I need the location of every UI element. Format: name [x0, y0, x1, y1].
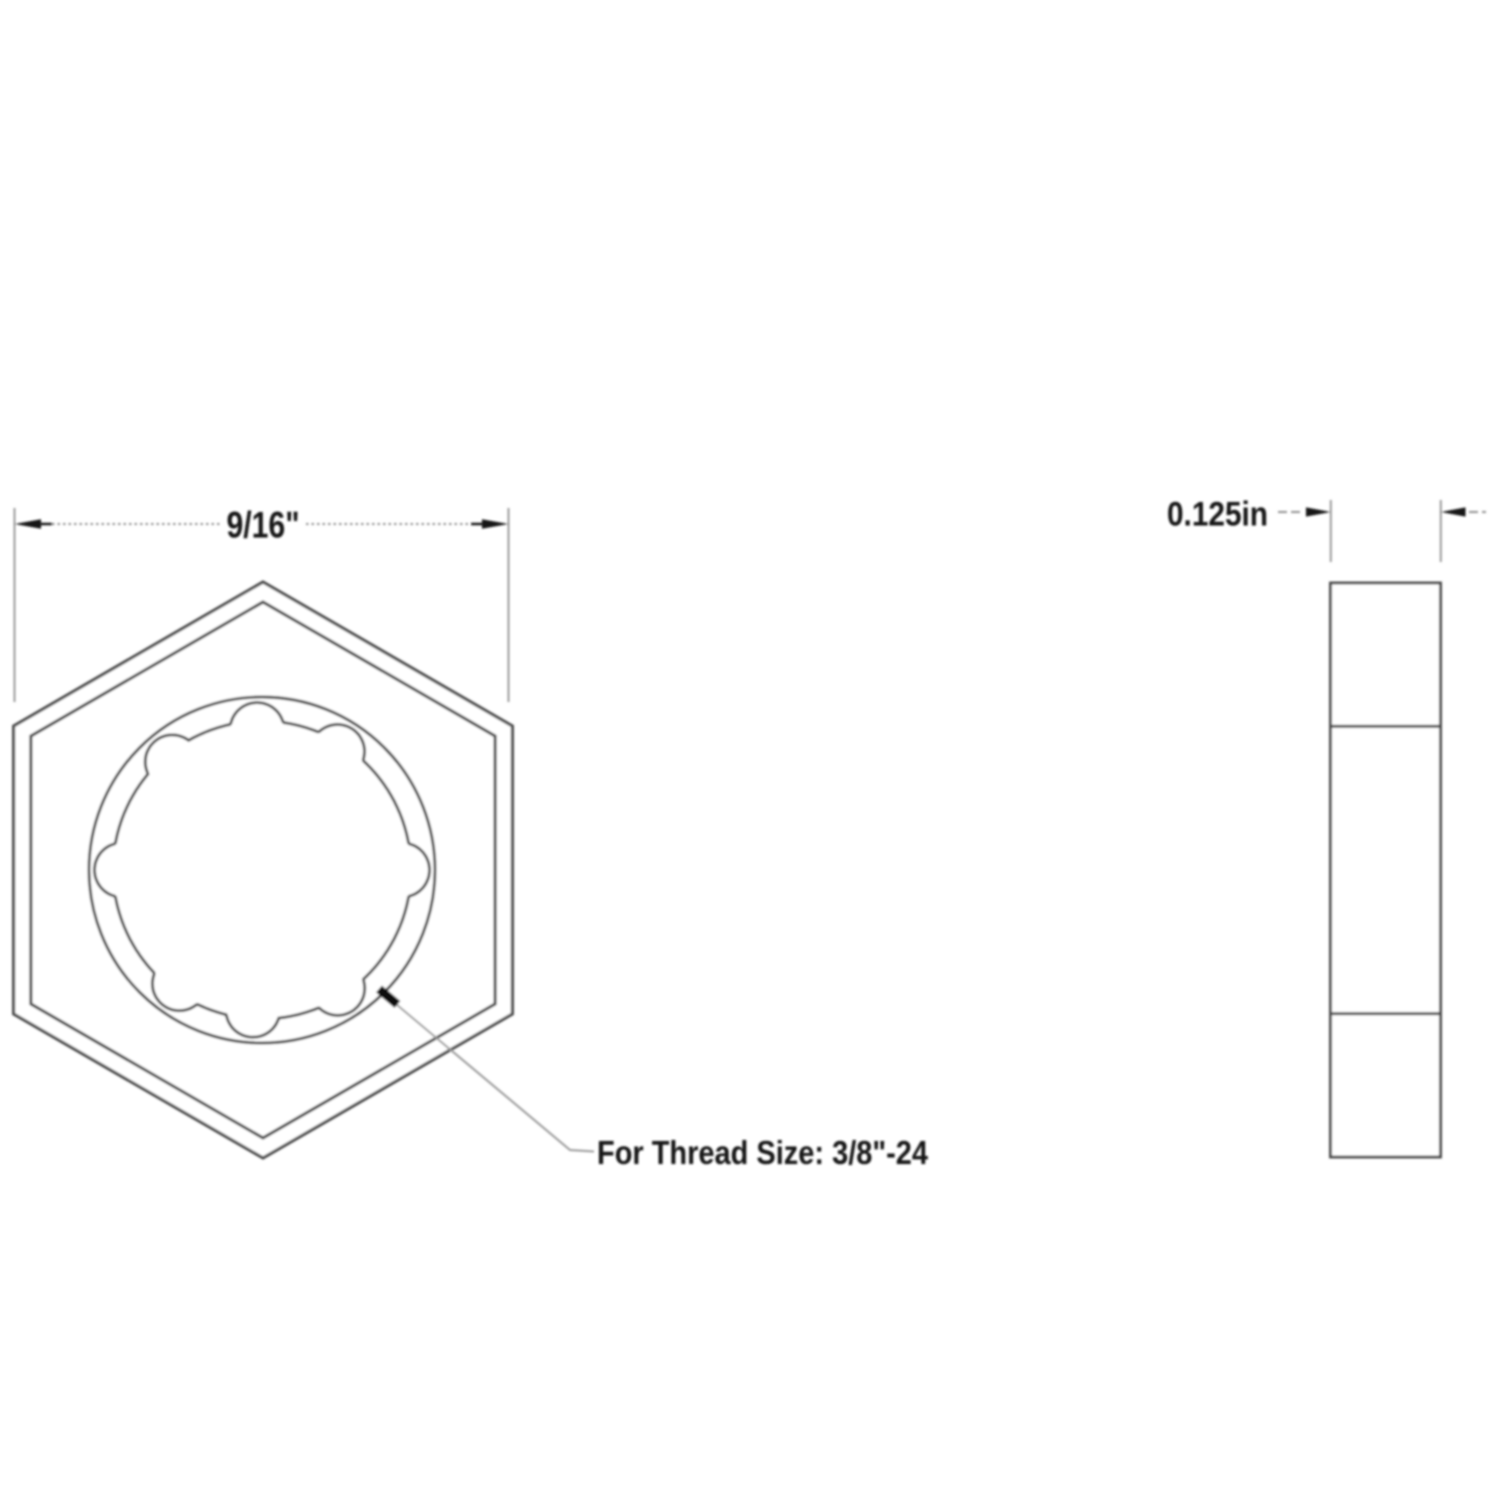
svg-text:0.125in: 0.125in	[1167, 496, 1268, 534]
svg-text:9/16": 9/16"	[227, 505, 300, 546]
svg-text:For Thread Size: 3/8"-24: For Thread Size: 3/8"-24	[597, 1134, 929, 1171]
